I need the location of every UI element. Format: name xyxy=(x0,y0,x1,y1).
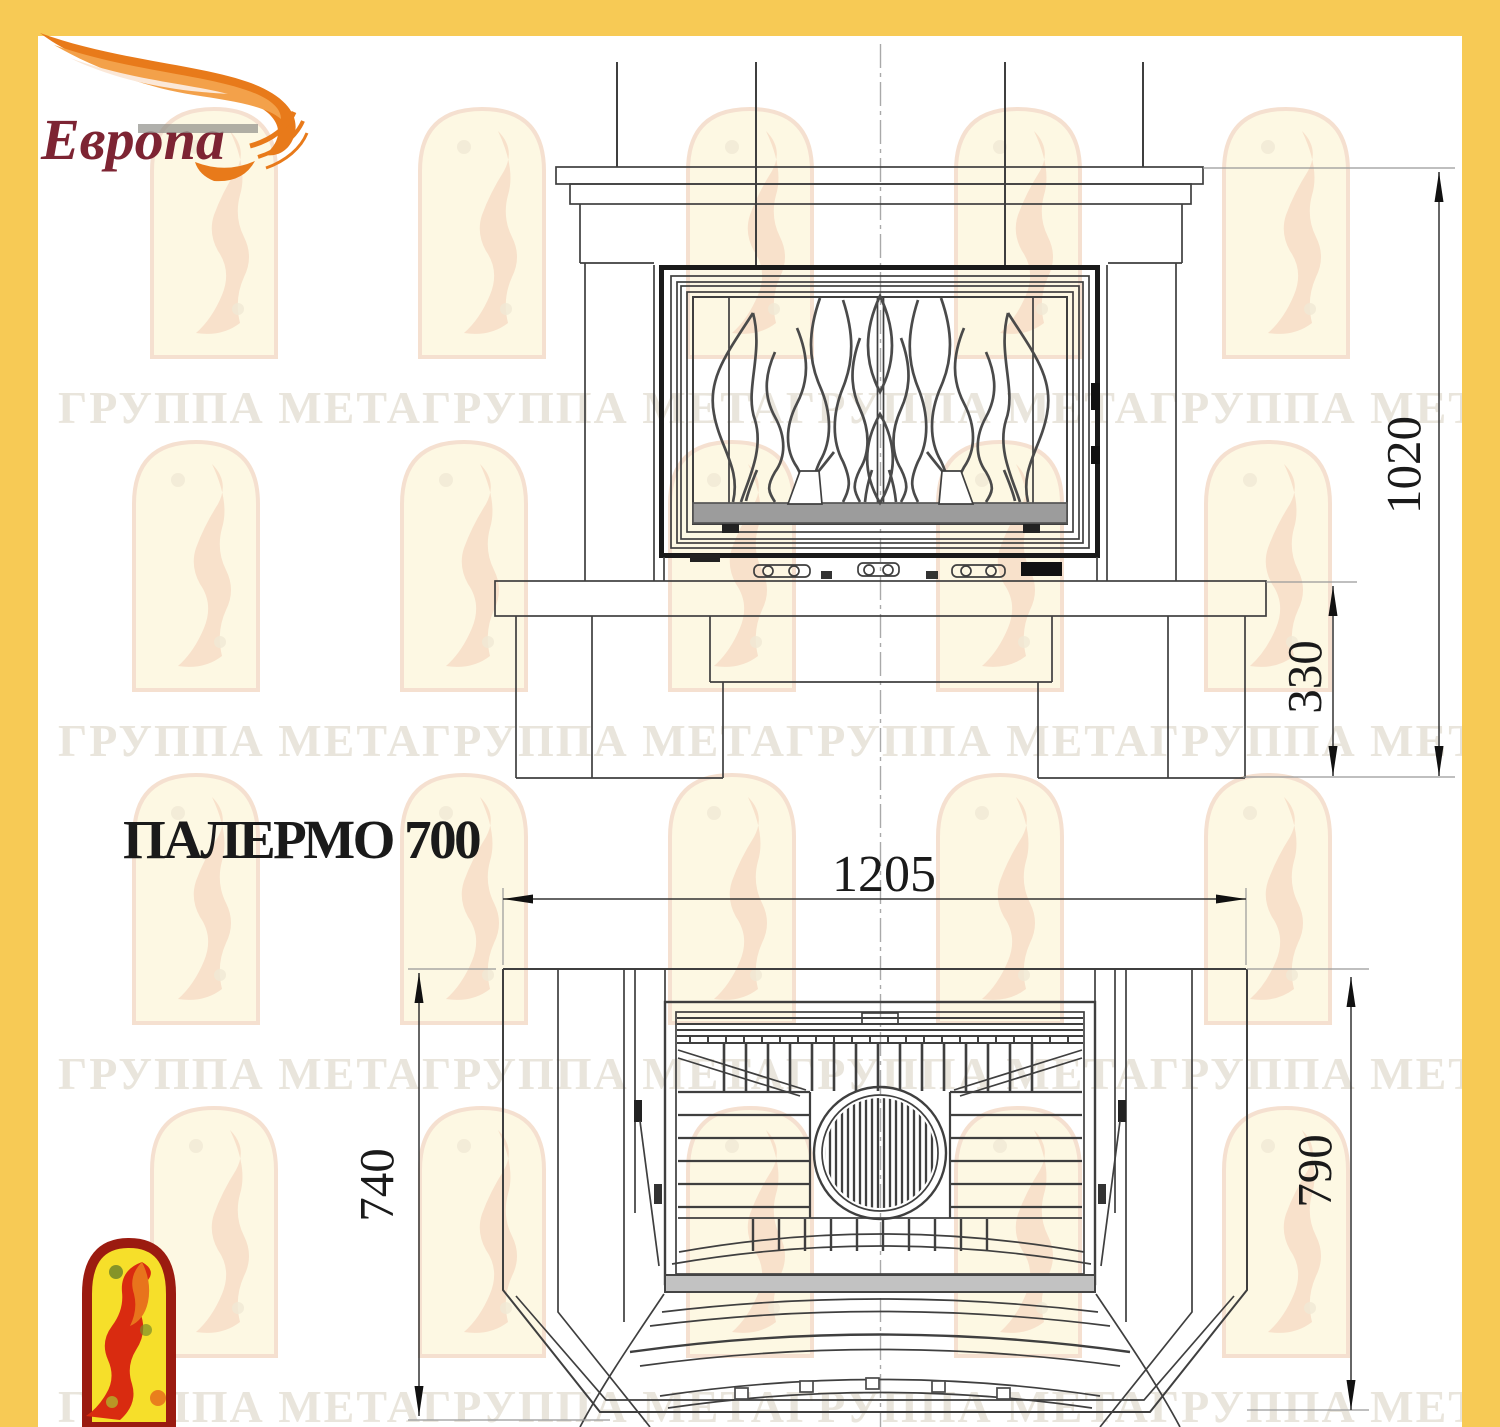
svg-text:1205: 1205 xyxy=(832,846,936,903)
svg-text:740: 740 xyxy=(349,1148,404,1222)
svg-text:790: 790 xyxy=(1287,1134,1342,1208)
svg-text:ПАЛЕРМО 700: ПАЛЕРМО 700 xyxy=(123,809,480,870)
svg-text:ГРУППА МЕТАГРУППА МЕТАГРУППА М: ГРУППА МЕТАГРУППА МЕТАГРУППА МЕТАГРУППА … xyxy=(58,715,1500,766)
svg-text:330: 330 xyxy=(1277,640,1332,714)
svg-text:1020: 1020 xyxy=(1376,416,1431,514)
svg-text:ГРУППА МЕТАГРУППА МЕТАГРУППА М: ГРУППА МЕТАГРУППА МЕТАГРУППА МЕТАГРУППА … xyxy=(58,1381,1500,1427)
svg-text:Европа: Европа xyxy=(40,107,225,172)
